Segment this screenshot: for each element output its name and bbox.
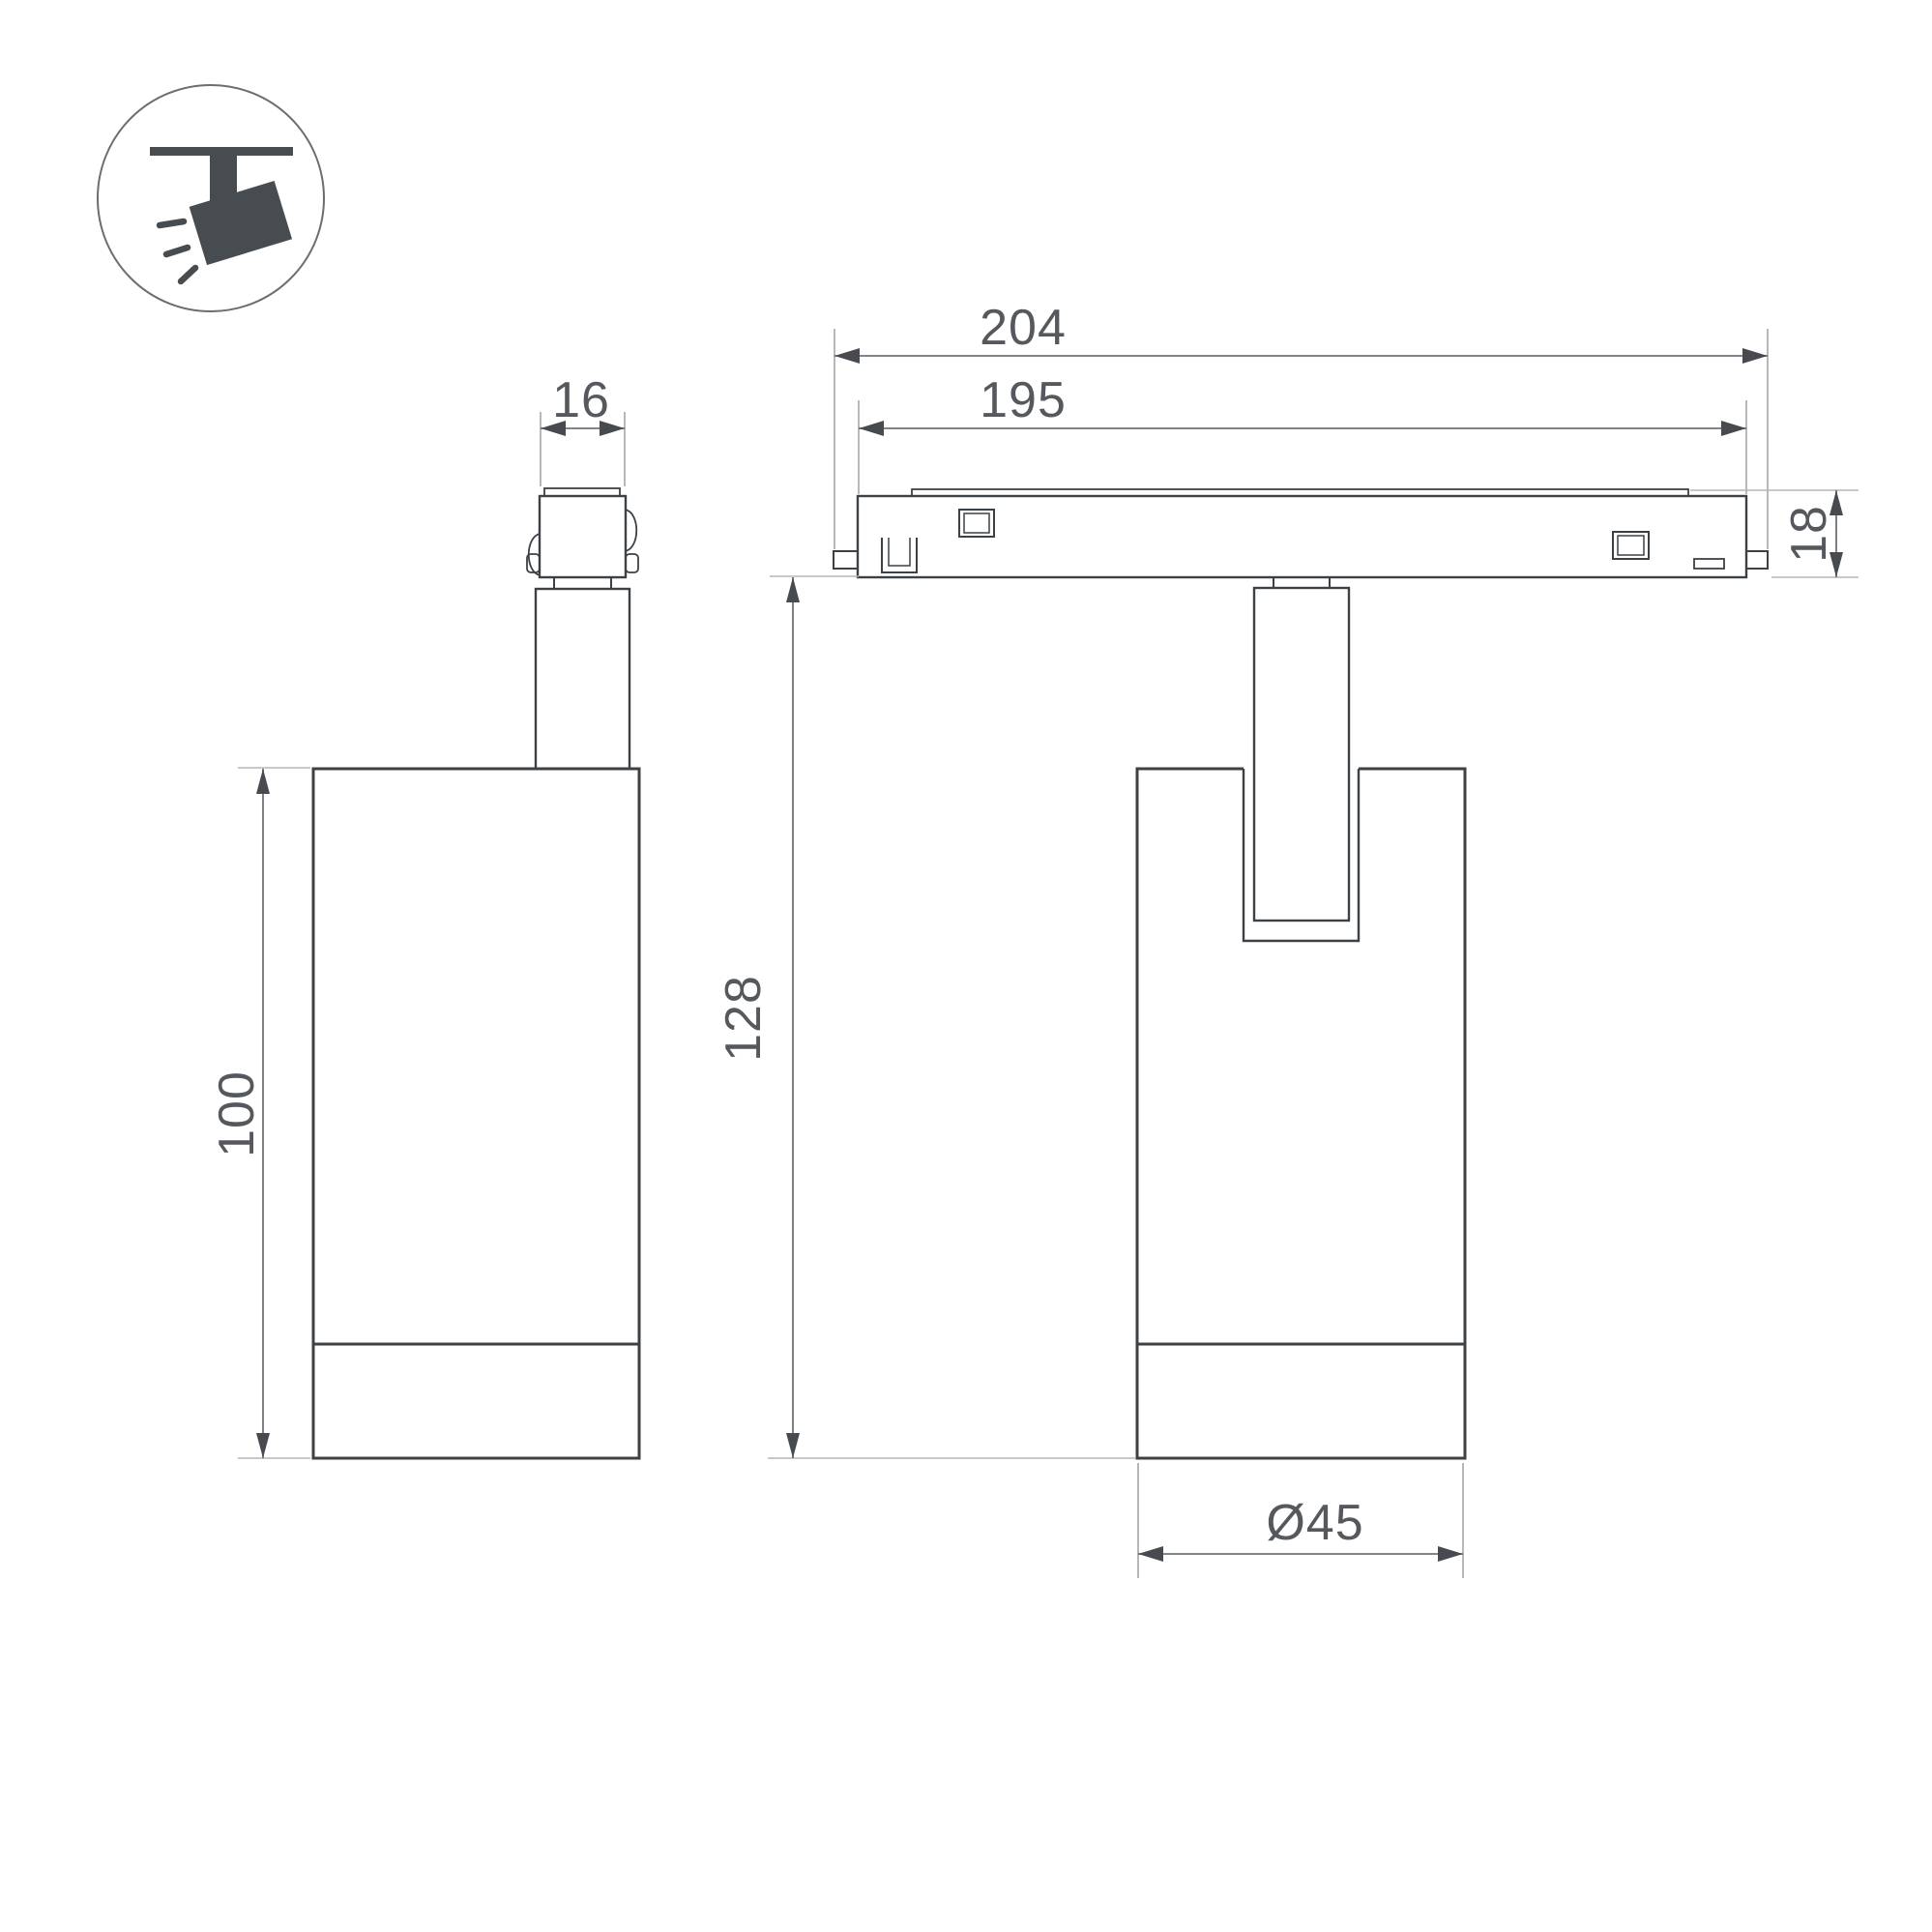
track-end-tab-right <box>1746 551 1768 569</box>
dimension-body-height: 100 <box>209 768 310 1458</box>
side-track-adapter <box>540 496 626 577</box>
track-clip-inner <box>889 538 910 566</box>
arrowhead-right <box>1721 421 1746 436</box>
arrowhead-down <box>256 1433 270 1458</box>
arrowhead-up <box>786 577 800 602</box>
arrowhead-right <box>1742 348 1768 364</box>
side-adapter-spring-right <box>626 510 636 551</box>
arrowhead-left <box>859 421 884 436</box>
side-neck <box>554 577 611 589</box>
dimension-label: 18 <box>1781 505 1837 563</box>
side-stem <box>536 589 629 769</box>
dimension-label: Ø45 <box>1266 1495 1363 1551</box>
light-ray <box>160 221 184 225</box>
track-window-right-inner <box>1618 536 1644 555</box>
dimension-label: 128 <box>716 975 772 1062</box>
arrowhead-down <box>786 1433 800 1458</box>
dimension-label: 16 <box>552 372 610 428</box>
side-adapter-tab-right <box>626 554 638 572</box>
dimension-adapter-width: 16 <box>541 372 625 486</box>
front-view <box>834 489 1768 1458</box>
dimension-track-outer-length: 204 <box>834 300 1768 549</box>
ceiling-bar-icon <box>150 147 293 156</box>
track-spotlight-icon <box>98 85 324 311</box>
front-stem <box>1254 588 1349 921</box>
track-slot-detail <box>1694 559 1724 569</box>
front-body-slot <box>1244 769 1359 941</box>
dimension-label: 100 <box>209 1070 265 1157</box>
dimension-label: 204 <box>980 300 1067 356</box>
track-clip-outer <box>882 538 917 572</box>
track-end-tab-left <box>834 551 858 569</box>
dimension-overall-drop-height: 128 <box>716 576 1135 1458</box>
front-body <box>1137 769 1465 1458</box>
dimension-track-inner-length: 195 <box>859 372 1746 494</box>
arrowhead-right <box>1438 1546 1463 1562</box>
side-adapter-seam <box>544 488 620 496</box>
arrowhead-left <box>834 348 860 364</box>
front-neck <box>1273 577 1330 588</box>
technical-drawing-canvas: 16 100 204 <box>0 0 1932 1932</box>
arrowhead-left <box>1138 1546 1163 1562</box>
side-view <box>313 488 639 1458</box>
dimension-body-diameter: Ø45 <box>1138 1463 1463 1578</box>
track-window-left-inner <box>964 513 989 533</box>
dimension-track-height: 18 <box>1690 490 1859 577</box>
drawing-page: 16 100 204 <box>0 0 1932 1932</box>
dimension-label: 195 <box>980 372 1067 428</box>
side-body <box>313 769 639 1458</box>
arrowhead-up <box>256 769 270 794</box>
